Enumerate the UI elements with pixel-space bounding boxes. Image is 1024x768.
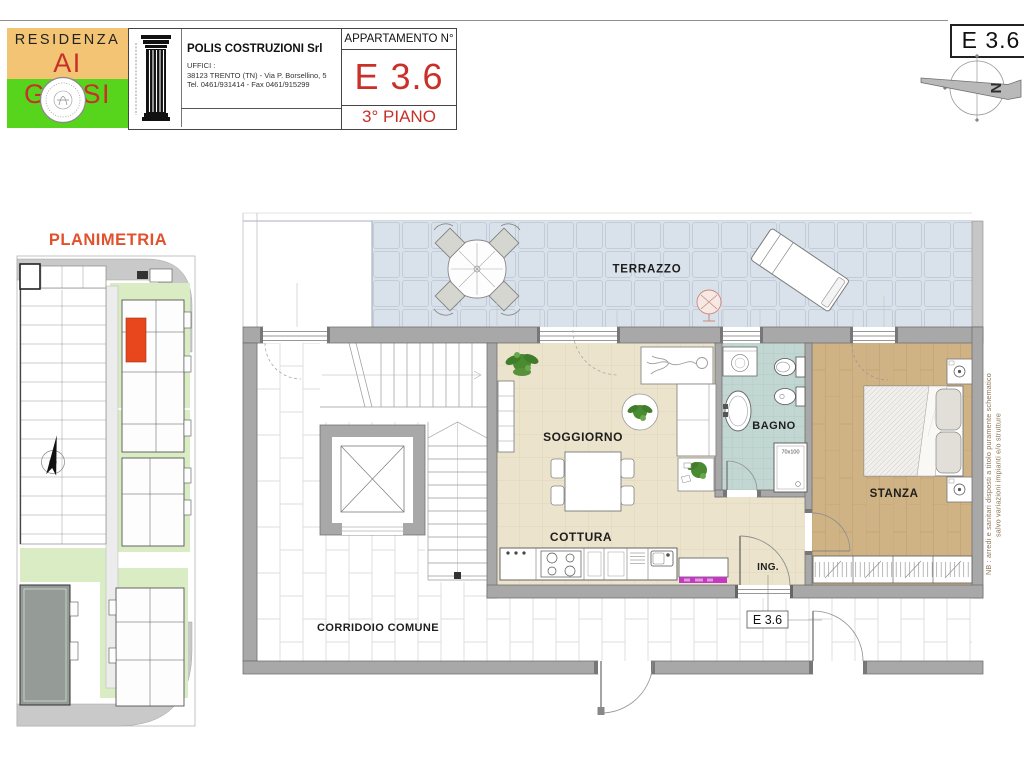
unit-tag-text: E 3.6 [753,613,782,627]
north-letter: N [987,83,1004,94]
bedroom-door-gap [805,509,812,555]
washing-machine [723,347,757,376]
plan-drawing: 70x100 [0,0,1024,768]
label-ing: ING. [757,562,779,573]
bath-door-gap [723,490,761,497]
shower-size-label: 70x100 [781,450,799,456]
label-stanza: STANZA [870,488,919,500]
entrance-opening [735,585,793,598]
kitchen-counter [500,548,677,580]
label-corridoio: CORRIDOIO COMUNE [317,622,439,634]
elevator [320,425,425,535]
corridor-door-gap-b [809,661,867,674]
shower: 70x100 [774,443,807,492]
bookshelf [498,381,514,452]
label-terrazzo: TERRAZZO [612,264,681,276]
highlighted-unit [126,318,146,362]
site-plan [17,256,195,726]
coffee-table [622,394,658,430]
bed [864,386,963,476]
wardrobe [813,556,972,583]
floorplan-page: RESIDENZA AI GELSI [0,0,1024,768]
toilet [775,357,806,377]
side-table [678,458,714,491]
nightstand [947,477,972,502]
bidet [775,387,806,406]
plan-note: NB : arredi e sanitari disposti a titolo… [984,371,1003,575]
north-compass: N [921,54,1021,122]
label-cottura: COTTURA [550,530,612,544]
label-soggiorno: SOGGIORNO [543,430,623,444]
corridor-door-gap-a [594,661,655,674]
dark-building [20,585,70,705]
kitchen-island [679,558,728,583]
label-bagno: BAGNO [752,420,795,432]
nightstand [947,359,972,384]
